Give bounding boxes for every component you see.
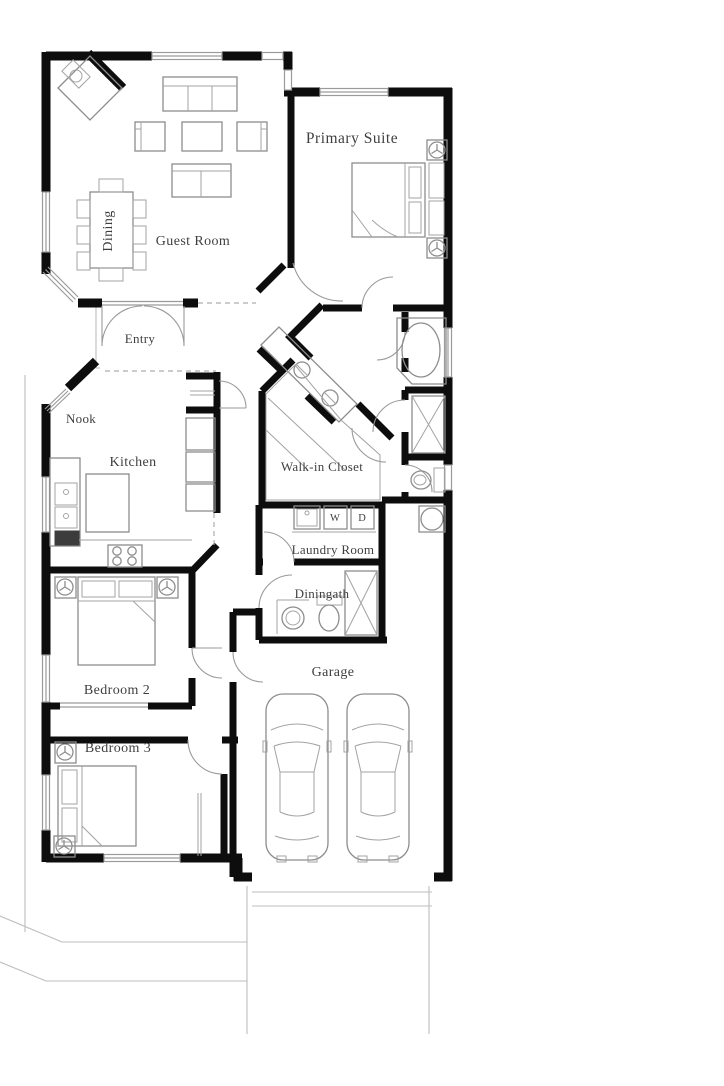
interior-walls <box>46 92 450 877</box>
label-walk-in-closet: Walk-in Closet <box>281 459 363 474</box>
furniture-bedroom-3 <box>54 742 201 857</box>
washer-label: W <box>330 513 340 524</box>
label-kitchen: Kitchen <box>109 455 156 470</box>
fixtures-laundry: W D <box>292 506 376 532</box>
car-right <box>344 694 412 862</box>
floor-plan-page: W D Dining Guest Room Primary <box>0 0 724 1086</box>
floor-plan-svg: W D Dining Guest Room Primary <box>0 0 724 1086</box>
exterior-walls <box>46 52 452 881</box>
label-bath: Diningath <box>295 586 350 601</box>
label-garage: Garage <box>312 665 355 680</box>
label-bedroom-3: Bedroom 3 <box>85 741 151 756</box>
fixtures-bath <box>277 571 377 635</box>
label-nook: Nook <box>66 411 96 426</box>
label-guest-room: Guest Room <box>156 234 230 249</box>
furniture-walk-in-closet <box>266 365 380 500</box>
furniture-garage <box>263 694 412 862</box>
label-primary-suite: Primary Suite <box>306 130 398 147</box>
label-laundry-room: Laundry Room <box>292 542 375 557</box>
label-dining: Dining <box>101 210 116 251</box>
car-left <box>263 694 331 862</box>
label-bedroom-2: Bedroom 2 <box>84 683 150 698</box>
furniture-bedroom-2 <box>55 577 178 665</box>
labels: Dining Guest Room Primary Suite Entry No… <box>66 130 398 756</box>
furniture-primary-suite <box>352 140 447 258</box>
dryer-label: D <box>358 513 366 524</box>
label-entry: Entry <box>125 331 156 346</box>
